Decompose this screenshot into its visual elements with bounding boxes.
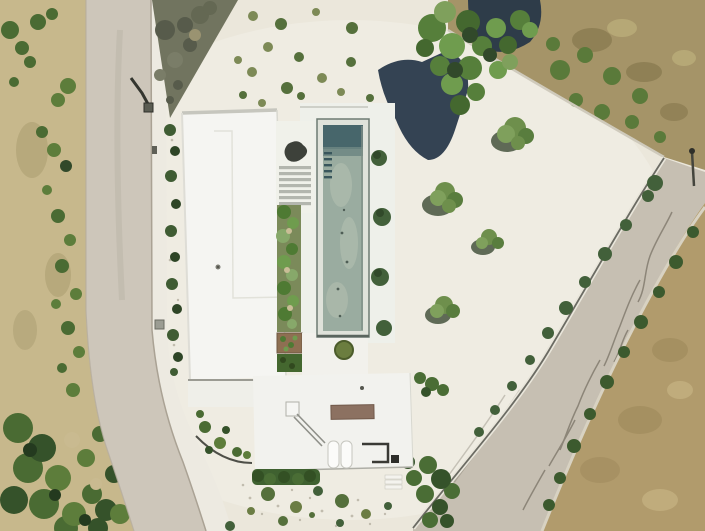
pool [317,119,369,337]
hedge-box [277,354,302,372]
stair-head [286,402,299,416]
main-house-roof [182,110,286,380]
roof-cylinder [328,441,339,468]
round-bush [335,341,353,359]
roof-cylinder [341,441,352,468]
road-post [152,146,157,154]
pool-deep-end [323,125,363,149]
garden-steps [385,475,402,489]
planter-box [277,333,302,353]
pergola-louvers [276,121,314,213]
aerial-photo-canvas [0,0,705,531]
roof-terrace-brown [331,405,374,420]
aerial-photo [0,0,705,531]
garden-bed [276,205,301,332]
utility-box [155,320,164,329]
patio [302,333,368,377]
south-hedge [252,469,320,485]
roof-hatch [391,455,399,463]
lower-wing-roof [253,373,413,471]
